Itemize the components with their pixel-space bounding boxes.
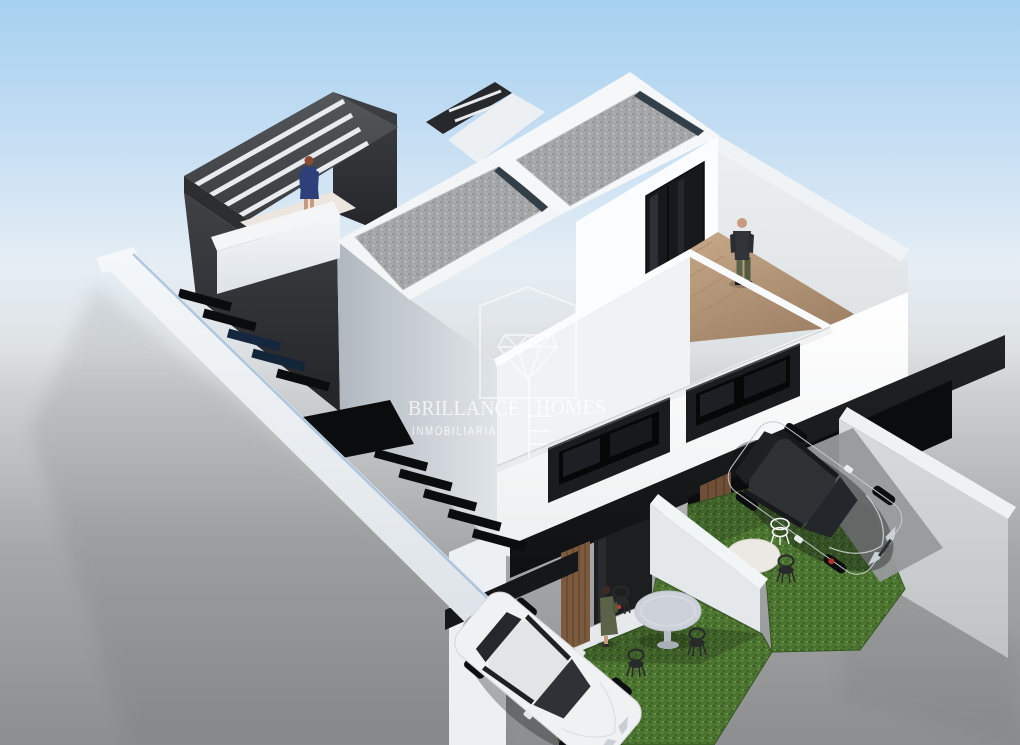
red-cup (617, 605, 621, 609)
man-head (737, 218, 747, 228)
brand-name-right: HOMES (536, 395, 606, 419)
table-base (657, 641, 679, 649)
woman-head (305, 156, 314, 165)
man-arm (730, 233, 736, 253)
render-viewport: BRILLANCE HOMES INMOBILIARIA (0, 0, 1020, 745)
bistro-table-left (635, 591, 701, 631)
brand-subtitle: INMOBILIARIA (412, 424, 497, 438)
man-arm (748, 233, 754, 253)
woman-shoe (603, 644, 609, 647)
woman-leg (604, 636, 608, 644)
woman-head (602, 586, 611, 595)
architectural-render: BRILLANCE HOMES INMOBILIARIA (0, 0, 1020, 745)
man-torso (733, 231, 751, 260)
brand-name-left: BRILLANCE (408, 396, 520, 420)
